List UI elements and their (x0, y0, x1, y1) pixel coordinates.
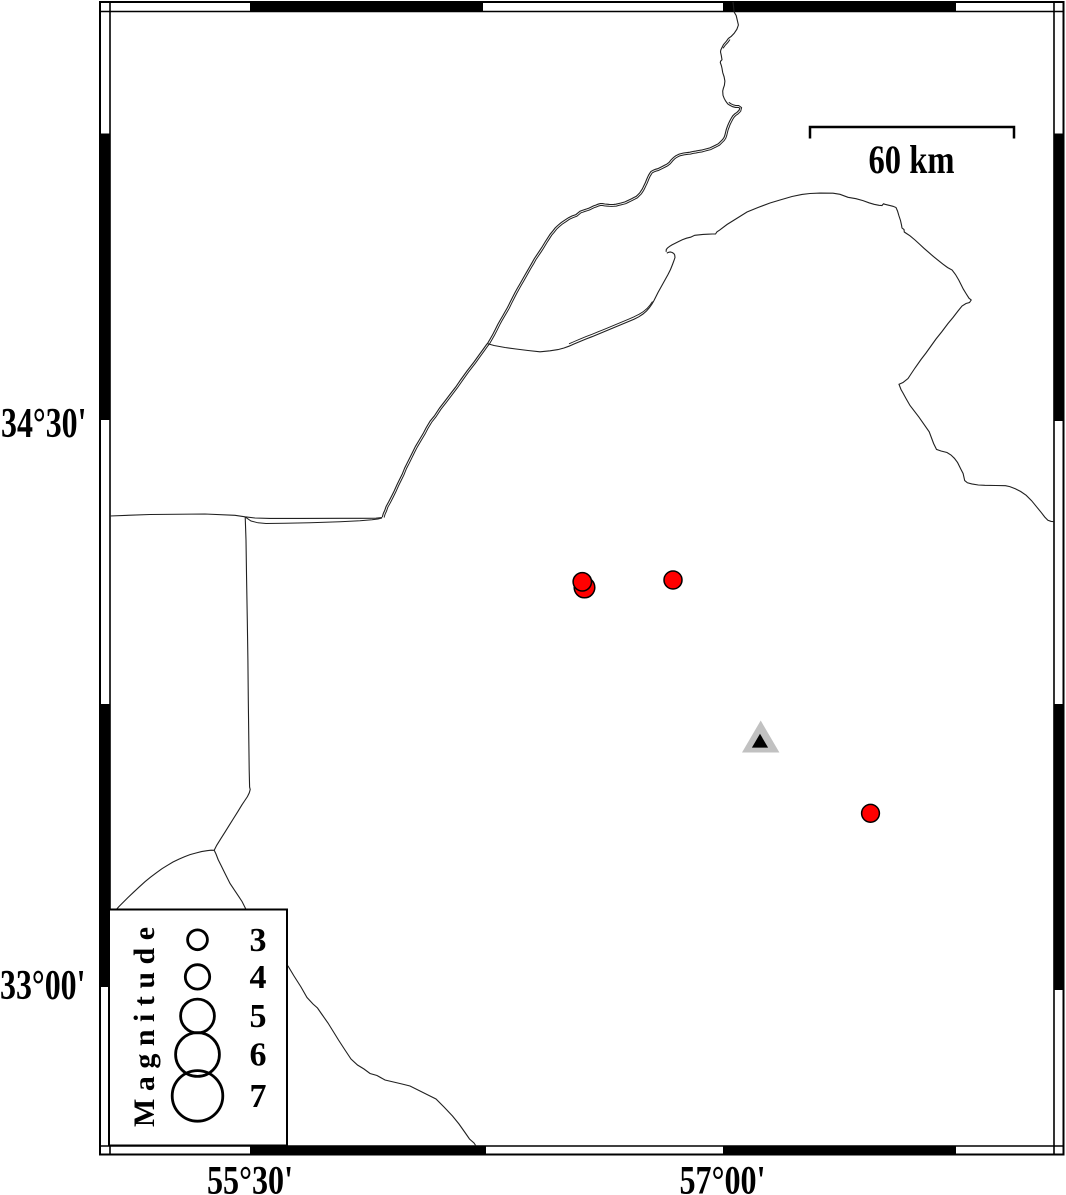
svg-text:4: 4 (250, 959, 267, 996)
svg-text:7: 7 (250, 1078, 267, 1115)
svg-text:60 km: 60 km (869, 137, 955, 182)
svg-text:34°30': 34°30' (1, 401, 87, 447)
svg-text:33°00': 33°00' (0, 963, 86, 1009)
svg-text:Magnitude: Magnitude (128, 919, 161, 1127)
svg-text:55°30': 55°30' (207, 1158, 293, 1195)
svg-text:5: 5 (250, 998, 267, 1035)
svg-text:6: 6 (250, 1037, 267, 1074)
svg-text:57°00': 57°00' (680, 1158, 766, 1195)
svg-text:3: 3 (250, 922, 267, 959)
